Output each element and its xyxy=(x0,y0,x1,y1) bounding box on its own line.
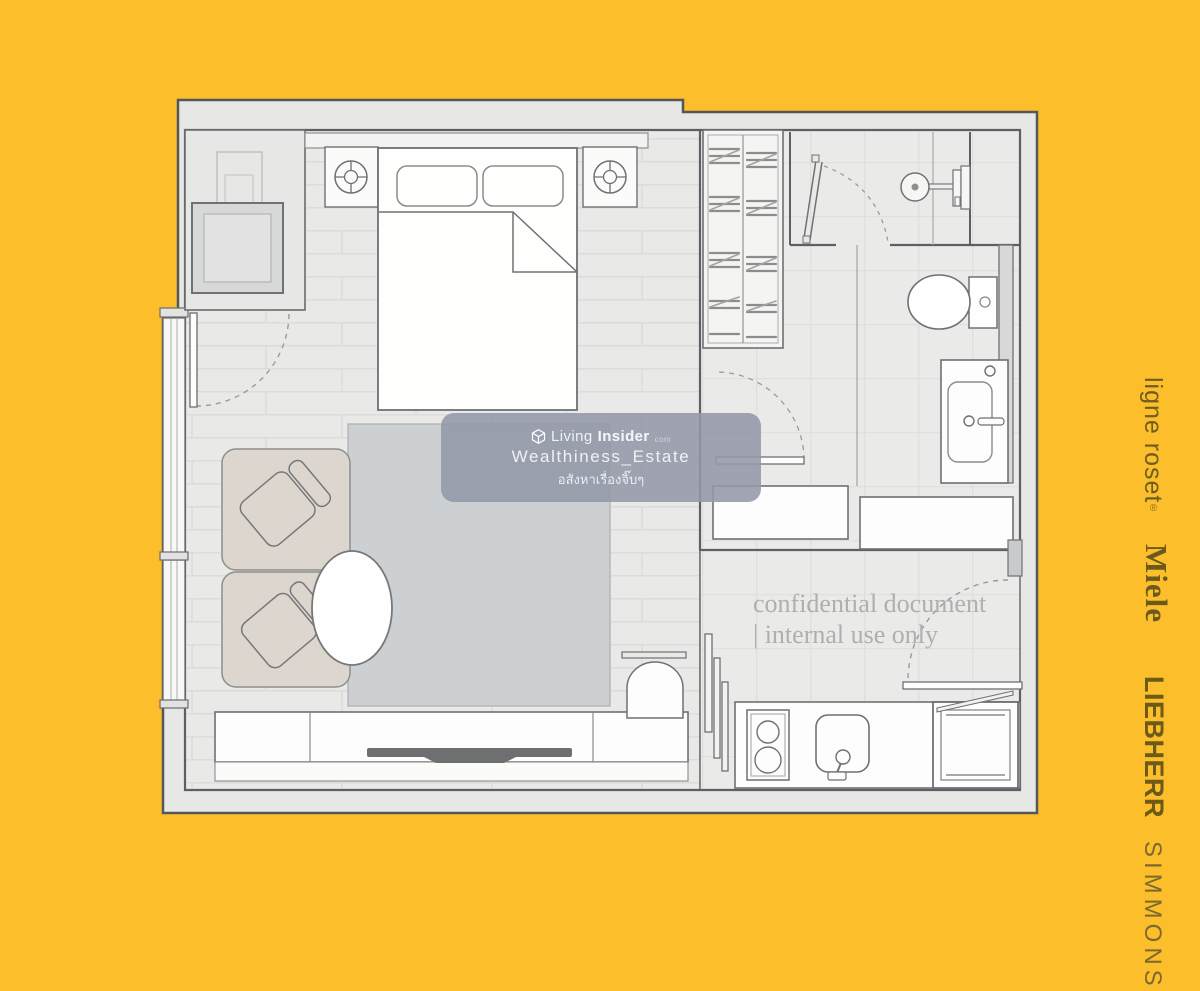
brand-simmons: SIMMONS xyxy=(1138,841,1166,991)
real-estate-floorplan-page: LivingInsider com Wealthiness_Estate อสั… xyxy=(0,0,1200,987)
watermark-tagline-thai: อสังหาเรื่องจิ๊บๆ xyxy=(441,469,761,490)
kitchen xyxy=(735,702,1020,788)
watermark-brand-domain: com xyxy=(655,435,671,444)
fridge xyxy=(933,702,1018,788)
confidential-line2: | internal use only xyxy=(753,619,986,650)
brand-miele: Miele xyxy=(1138,544,1174,623)
left-windows xyxy=(160,308,188,708)
brand-ligne-roset: ligne roset® xyxy=(1138,377,1167,515)
confidential-note: confidential document | internal use onl… xyxy=(753,588,986,650)
lamp-left xyxy=(335,161,367,193)
stove xyxy=(747,710,789,780)
registered-mark: ® xyxy=(1148,503,1159,515)
watermark-brand-line: LivingInsider com xyxy=(441,428,761,445)
headboard xyxy=(305,133,648,148)
watermark-handle: Wealthiness_Estate xyxy=(441,447,761,467)
vanity-sink xyxy=(941,360,1008,483)
confidential-line1: confidential document xyxy=(753,588,986,619)
watermark-brand-bold: Insider xyxy=(598,428,650,445)
kitchen-sink xyxy=(816,715,869,780)
brand-ligne-roset-label: ligne roset xyxy=(1139,377,1167,503)
coffee-table xyxy=(312,551,392,665)
watermark-badge: LivingInsider com Wealthiness_Estate อสั… xyxy=(441,413,761,502)
toilet xyxy=(908,275,997,329)
brand-liebherr: LIEBHERR xyxy=(1138,676,1169,818)
balcony xyxy=(185,130,305,310)
pillow-right xyxy=(483,166,563,206)
tv xyxy=(367,748,572,757)
tv-console xyxy=(215,712,688,781)
watermark-brand-light: Living xyxy=(551,428,593,445)
wardrobe xyxy=(703,130,783,348)
living-insider-logo-icon xyxy=(531,429,546,444)
lamp-right xyxy=(594,161,626,193)
pillow-left xyxy=(397,166,477,206)
